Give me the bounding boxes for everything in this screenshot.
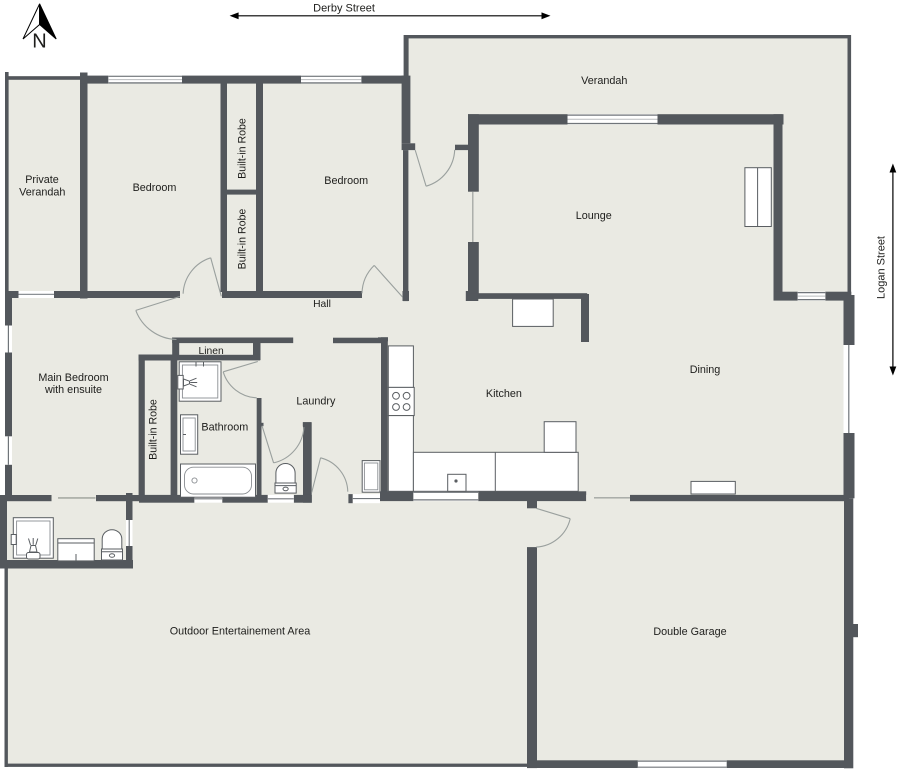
svg-text:Bathroom: Bathroom [201,422,248,434]
svg-text:Built-in Robe: Built-in Robe [236,209,248,270]
svg-text:Verandah: Verandah [19,187,65,199]
svg-text:Main Bedroom: Main Bedroom [38,372,108,384]
svg-text:Derby Street: Derby Street [313,3,375,15]
svg-text:Private: Private [25,174,59,186]
svg-text:Built-in Robe: Built-in Robe [147,399,159,460]
svg-text:Verandah: Verandah [581,75,627,87]
svg-text:Lounge: Lounge [576,210,612,222]
svg-text:Dining: Dining [690,364,721,376]
svg-text:with ensuite: with ensuite [44,384,102,396]
svg-text:Bedroom: Bedroom [133,182,177,194]
svg-text:Logan Street: Logan Street [876,236,888,299]
svg-text:Outdoor Entertainement Area: Outdoor Entertainement Area [170,626,310,638]
svg-text:Double Garage: Double Garage [653,626,726,638]
svg-text:Linen: Linen [198,346,223,357]
svg-text:Hall: Hall [313,299,331,310]
svg-text:Laundry: Laundry [296,396,336,408]
svg-text:N: N [32,31,46,53]
svg-text:Bedroom: Bedroom [324,175,368,187]
svg-text:Built-in Robe: Built-in Robe [236,118,248,179]
svg-text:Kitchen: Kitchen [486,388,522,400]
